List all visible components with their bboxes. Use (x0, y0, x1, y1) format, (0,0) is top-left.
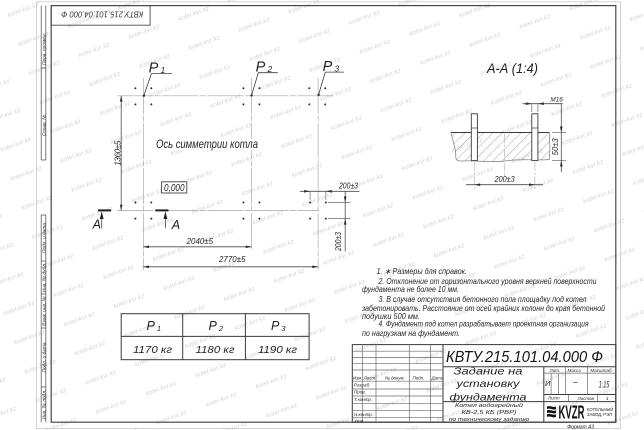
svg-text:1:15: 1:15 (599, 379, 610, 389)
svg-text:Инв. № дубл.: Инв. № дубл. (41, 263, 47, 293)
svg-text:Инв. № подл.: Инв. № подл. (41, 390, 47, 420)
svg-text:0,000: 0,000 (164, 182, 185, 194)
svg-text:А: А (171, 218, 180, 232)
svg-text:№ докум.: № докум. (385, 376, 405, 381)
svg-text:1. ∗ Размеры для справок.: 1. ∗ Размеры для справок. (377, 267, 468, 276)
svg-text:Подп.: Подп. (413, 376, 425, 381)
svg-text:2770±5: 2770±5 (218, 255, 246, 264)
svg-text:Дата: Дата (431, 376, 444, 381)
svg-text:А-А (1:4): А-А (1:4) (486, 61, 538, 76)
svg-text:Разраб.: Разраб. (354, 383, 370, 388)
svg-text:А: А (92, 218, 101, 232)
svg-text:1170 кг: 1170 кг (133, 344, 172, 356)
svg-text:50±3: 50±3 (551, 138, 560, 155)
svg-text:Котел водогрейный: Котел водогрейный (455, 402, 523, 409)
svg-text:Изм.: Изм. (353, 376, 363, 381)
svg-text:Формат А3: Формат А3 (567, 424, 595, 430)
svg-text:КВ-2,5 КБ (РВР): КВ-2,5 КБ (РВР) (462, 410, 517, 416)
svg-text:Подп. и дата: Подп. и дата (41, 223, 47, 253)
svg-text:200±3: 200±3 (494, 175, 515, 184)
svg-text:по техническому заданию: по техническому заданию (449, 417, 530, 423)
svg-text:Масштаб: Масштаб (591, 368, 612, 373)
svg-text:Перв. примен.: Перв. примен. (41, 33, 47, 65)
svg-text:Подп. и дата: Подп. и дата (41, 342, 47, 372)
svg-text:KVZR: KVZR (559, 401, 585, 422)
svg-text:1360±5: 1360±5 (113, 140, 122, 165)
svg-text:Н.контр.: Н.контр. (354, 412, 373, 417)
svg-text:Листов: Листов (577, 396, 595, 401)
svg-text:1190 кг: 1190 кг (258, 344, 297, 356)
svg-text:КВТУ.215.101.04.000 Ф: КВТУ.215.101.04.000 Ф (446, 349, 603, 366)
svg-text:Лист: Лист (363, 376, 376, 381)
svg-text:И: И (545, 379, 551, 388)
svg-text:Ось симметрии котла: Ось симметрии котла (156, 137, 258, 151)
svg-text:200±3: 200±3 (338, 182, 358, 191)
svg-text:Справ. №: Справ. № (41, 115, 47, 137)
svg-text:200±3: 200±3 (334, 232, 343, 252)
svg-text:Т.контр.: Т.контр. (354, 397, 372, 402)
svg-text:Лист: Лист (547, 396, 560, 401)
svg-text:Взам. инв. №: Взам. инв. № (41, 296, 47, 326)
svg-text:Задание на: Задание на (454, 366, 523, 377)
svg-text:Лит.: Лит. (549, 368, 561, 373)
svg-text:1180 кг: 1180 кг (196, 344, 235, 356)
svg-text:3. В случае отсутствия бетонн: 3. В случае отсутствия бетонного пола пл… (379, 295, 587, 304)
svg-text:фундамента: фундамента (450, 391, 527, 403)
svg-text:М16: М16 (550, 97, 563, 104)
svg-text:по нагрузкам на фундамент.: по нагрузкам на фундамент. (362, 329, 460, 338)
svg-text:Утв.: Утв. (354, 418, 364, 423)
svg-text:–: – (572, 378, 578, 387)
svg-text:2040±5: 2040±5 (186, 237, 214, 246)
svg-text:Пров.: Пров. (354, 390, 366, 395)
svg-text:КВТУ.215.101.04.000 Ф: КВТУ.215.101.04.000 Ф (61, 10, 144, 19)
svg-text:ЗАВОД, РЭП: ЗАВОД, РЭП (587, 412, 612, 417)
svg-text:Масса: Масса (568, 368, 582, 373)
svg-text:установку: установку (455, 379, 520, 390)
svg-text:4. Фундамент под котел разраб: 4. Фундамент под котел разрабатывает про… (379, 319, 590, 328)
svg-text:фундамента не более 10 мм.: фундамента не более 10 мм. (362, 285, 459, 294)
